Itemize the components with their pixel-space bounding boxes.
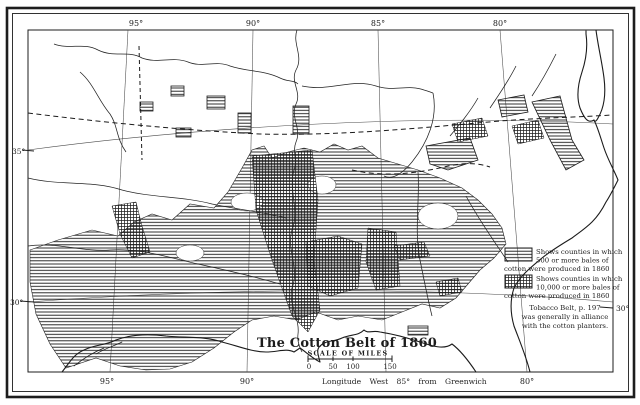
right-latitude-label: 30° bbox=[616, 304, 630, 313]
river-washita bbox=[80, 72, 126, 152]
scale-tick-label: 50 bbox=[329, 363, 338, 371]
longitude-caption: Longitude West 85° from Greenwich bbox=[322, 377, 487, 386]
top-longitude-label: 90° bbox=[246, 19, 260, 28]
river-arkansas-upper bbox=[54, 44, 298, 84]
bottom-longitude-label: 80° bbox=[520, 377, 534, 386]
legend-text: cotton were produced in 1860 bbox=[504, 292, 609, 300]
map-legend: Shows counties in which 500 or more bale… bbox=[504, 248, 623, 330]
legend-swatch-500-bales-icon bbox=[505, 248, 532, 261]
left-latitude-label: 35° bbox=[12, 147, 26, 156]
legend-text: 500 or more bales of bbox=[536, 257, 609, 265]
top-longitude-label: 80° bbox=[493, 19, 507, 28]
bottom-longitude-label: 95° bbox=[100, 377, 114, 386]
cotton-belt-map: 95° 90° 85° 80° 95° 90° 80° 35° 30° 30° … bbox=[0, 0, 640, 405]
legend-text: Shows counties in which bbox=[536, 248, 623, 256]
unhatched-hole bbox=[176, 245, 204, 261]
legend-note: with the cotton planters. bbox=[522, 322, 608, 330]
top-longitude-label: 85° bbox=[371, 19, 385, 28]
bottom-longitude-label: 90° bbox=[240, 377, 254, 386]
unhatched-hole bbox=[418, 203, 458, 229]
delmarva-peninsula bbox=[594, 30, 605, 121]
scale-tick-label: 100 bbox=[346, 363, 359, 371]
alabama-black-belt-dense bbox=[306, 236, 362, 296]
legend-text: 10,000 or more bales of bbox=[536, 284, 620, 292]
scale-tick-label: 0 bbox=[307, 363, 311, 371]
legend-text: Shows counties in which bbox=[536, 275, 623, 283]
scale-of-miles-label: SCALE OF MILES bbox=[308, 350, 389, 358]
title-block: The Cotton Belt of 1860 SCALE OF MILES 0… bbox=[257, 336, 437, 371]
legend-note: Tobacco Belt, p. 197 bbox=[529, 304, 600, 312]
river-ohio bbox=[302, 83, 433, 93]
scanned-map-page: 95° 90° 85° 80° 95° 90° 80° 35° 30° 30° … bbox=[0, 0, 640, 405]
legend-text: cotton were produced in 1860 bbox=[504, 265, 609, 273]
legend-note: was generally in alliance bbox=[522, 313, 609, 321]
top-longitude-label: 95° bbox=[129, 19, 143, 28]
left-latitude-label: 30° bbox=[10, 298, 24, 307]
river-virginia-3 bbox=[532, 54, 556, 96]
scale-tick-label: 150 bbox=[383, 363, 396, 371]
legend-swatch-10000-bales-icon bbox=[505, 275, 532, 288]
